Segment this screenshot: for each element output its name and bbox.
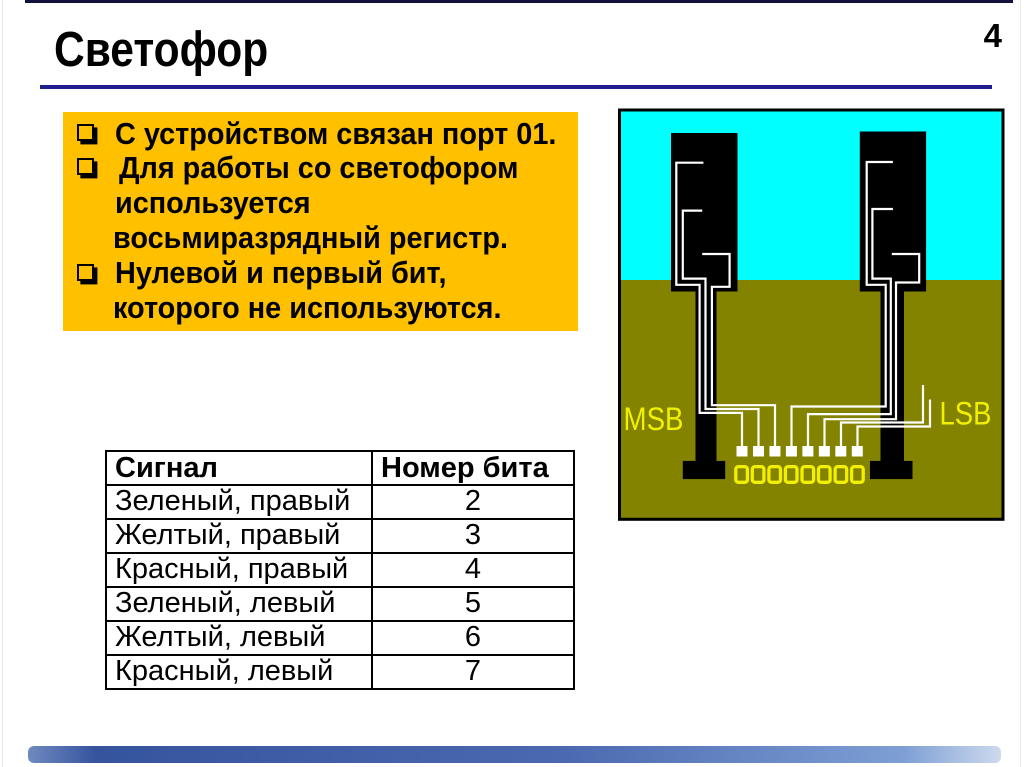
svg-text:LSB: LSB: [940, 396, 992, 432]
svg-text:MSB: MSB: [624, 401, 684, 437]
